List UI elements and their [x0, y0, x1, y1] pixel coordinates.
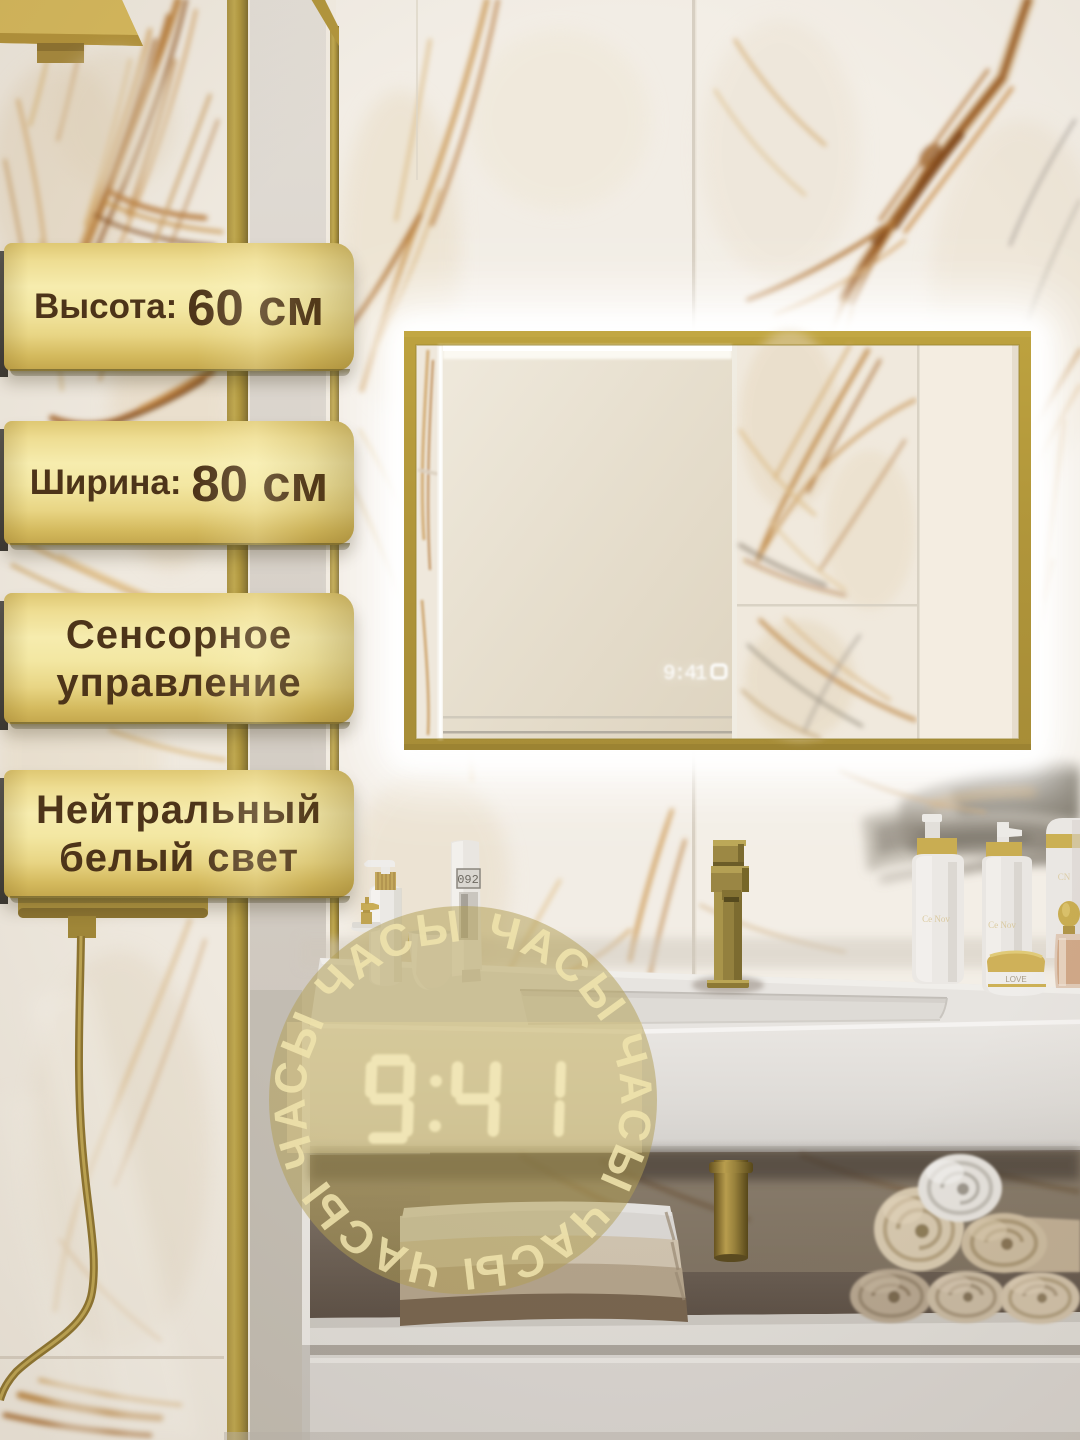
- svg-text:9:41: 9:41: [663, 663, 707, 686]
- svg-text:CN: CN: [1058, 872, 1071, 882]
- svg-text:Ce Nov: Ce Nov: [922, 914, 950, 924]
- svg-text:Ce Nov: Ce Nov: [988, 920, 1016, 930]
- svg-text:LOVE: LOVE: [1005, 975, 1026, 984]
- svg-text:092: 092: [457, 873, 479, 887]
